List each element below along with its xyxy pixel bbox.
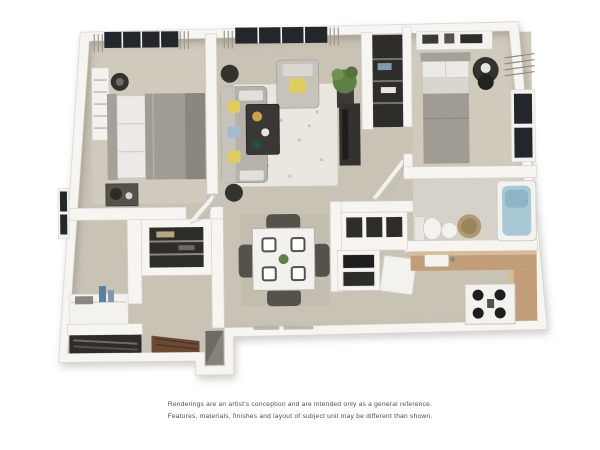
blue-pillow (227, 127, 239, 138)
closet-basket (156, 231, 174, 237)
wall-under-master (66, 207, 186, 220)
wall-living-closet (361, 32, 373, 129)
page: { "page": { "background_color": "#ffffff… (0, 0, 600, 450)
wall-bath-kitchen (404, 240, 537, 252)
linen-closet (141, 219, 212, 276)
wall-hall-dining (211, 219, 224, 328)
place-setting (291, 238, 304, 251)
sink (425, 254, 449, 266)
disclaimer-line-2: Features, materials, finishes and layout… (0, 411, 600, 423)
yellow-pillow (289, 78, 306, 93)
coffee-table (246, 104, 280, 154)
wall-hall-kitchen (330, 201, 413, 213)
wall-stub-doorframe (210, 207, 223, 219)
wall-bedroom2-bath (404, 166, 537, 179)
place-setting (263, 267, 276, 280)
bathtub (497, 181, 537, 241)
master-dresser (92, 68, 110, 140)
wall-shoe-closet-top (67, 324, 142, 336)
headboard (107, 94, 118, 180)
second-bed (420, 52, 471, 164)
vanity-tray (75, 296, 93, 304)
oven (343, 271, 375, 286)
disclaimer-line-1: Renderings are an artist's conception an… (0, 399, 600, 411)
master-bed (107, 93, 206, 180)
disclaimer-text: Renderings are an artist's conception an… (0, 399, 600, 423)
bath-stool (441, 222, 457, 238)
yellow-pillow (227, 101, 240, 113)
shoe-closet (69, 335, 141, 354)
toilet (414, 217, 441, 241)
foot-throw (185, 93, 206, 179)
floor-plan-svg (0, 0, 600, 395)
microwave (343, 254, 375, 268)
pillows (117, 96, 146, 178)
headboard (420, 52, 470, 62)
dining-chair (267, 289, 301, 306)
blue-bottle (99, 286, 106, 302)
stove (465, 284, 515, 325)
dining-table (252, 228, 315, 291)
floor-plan-image (0, 0, 600, 395)
closet-bin (378, 63, 392, 70)
wall-closet-bedroom2 (402, 27, 412, 127)
hall-closet (372, 35, 403, 127)
yellow-pillow (227, 151, 240, 163)
folded-sheet (423, 77, 469, 93)
place-setting (292, 267, 305, 280)
appliance-cabinet (338, 250, 380, 290)
wall-master-living (205, 34, 218, 194)
place-setting (262, 238, 275, 251)
upper-cabinets (341, 212, 407, 251)
armchair (277, 60, 320, 108)
bedroom2-dresser (416, 31, 492, 50)
blue-bottle (108, 290, 114, 302)
master-side-window (58, 188, 70, 238)
wall-dressing-hall (127, 220, 142, 304)
nightstand (106, 184, 138, 206)
dining-area (238, 214, 330, 307)
